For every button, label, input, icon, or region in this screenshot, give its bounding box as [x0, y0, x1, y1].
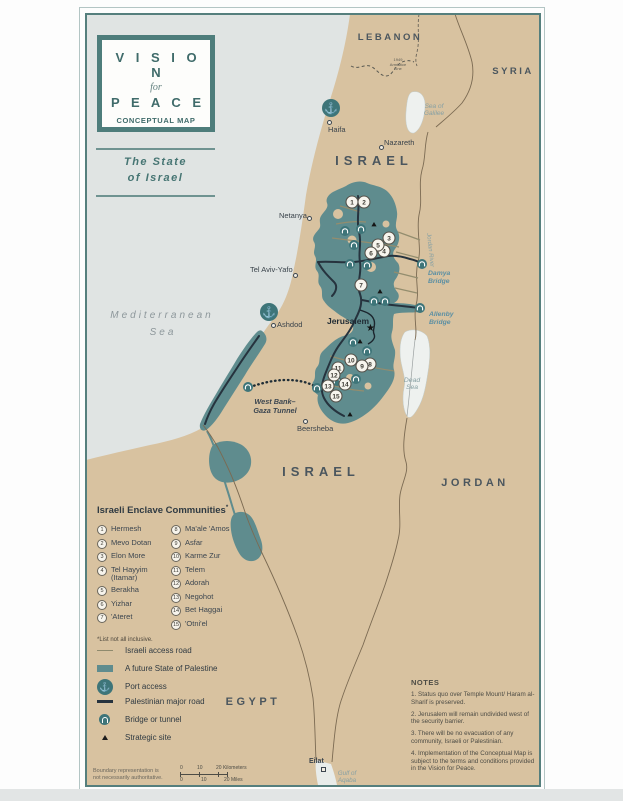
label-egypt: EGYPT	[226, 696, 281, 708]
map-subtitle: The State of Israel	[96, 154, 215, 186]
enclave-item: 7'Ateret	[97, 613, 171, 623]
enclave-name: Hermesh	[111, 525, 167, 534]
enclave-item: 3Elon More	[97, 552, 171, 562]
enclave-name: 'Otni'el	[185, 620, 241, 629]
symbol-legend: Israeli access road A future State of Pa…	[97, 646, 218, 751]
port-haifa-icon: ⚓	[322, 99, 340, 117]
scale-tick	[199, 772, 200, 777]
enclave-number: 7	[97, 613, 107, 623]
enclave-name: Telem	[185, 566, 241, 575]
note-item: 2. Jerusalem will remain undivided west …	[411, 711, 538, 727]
scale-mi-10: 10	[201, 777, 207, 783]
enclave-item: 4Tel Hayyim (Itamar)	[97, 566, 171, 583]
enclave-item: 5Berakha	[97, 586, 171, 596]
enclave-item: 14Bet Haggai	[171, 606, 245, 616]
west-bank-gaza-tunnel-line	[250, 380, 316, 387]
svg-text:8: 8	[368, 362, 372, 369]
svg-text:13: 13	[324, 384, 332, 391]
ashdod-dot	[271, 323, 276, 328]
label-israel-north: ISRAEL	[335, 153, 413, 168]
label-mediterranean-sea: Sea	[150, 327, 177, 338]
label-israel-south: ISRAEL	[282, 464, 360, 479]
scale-km-0: 0	[180, 765, 183, 771]
subtitle-line1: The State	[96, 154, 215, 170]
conceptual-map: ⚓ ⚓ 1 2 3 4 5 6 7 8 9 10 11 12 13 14 15 …	[85, 13, 541, 787]
title-for: for	[102, 82, 210, 93]
title-box: V I S I O N for P E A C E CONCEPTUAL MAP	[97, 35, 215, 132]
enclave-name: Bet Haggai	[185, 606, 241, 615]
enclave-legend-title: Israeli Enclave Communities*	[97, 505, 312, 516]
enclave-name: Berakha	[111, 586, 167, 595]
notes-panel: NOTES 1. Status quo over Temple Mount/ H…	[411, 678, 538, 777]
enclave-item: 10Karme Zur	[171, 552, 245, 562]
anchor-icon: ⚓	[97, 679, 113, 695]
legend-label: Israeli access road	[125, 646, 192, 655]
enclave-legend: Israeli Enclave Communities* 1Hermesh 2M…	[97, 505, 312, 643]
enclave-number: 15	[171, 620, 181, 630]
svg-text:9: 9	[360, 364, 364, 371]
label-mediterranean: Mediterranean	[110, 310, 213, 321]
svg-text:⚓: ⚓	[262, 306, 276, 319]
enclave-item: 12Adorah	[171, 579, 245, 589]
legend-row: Strategic site	[97, 733, 218, 742]
enclave-item: 6Yizhar	[97, 600, 171, 610]
legend-label: Port access	[125, 682, 167, 691]
legend-label: Strategic site	[125, 733, 171, 742]
disclaimer-line1: Boundary representation is	[93, 768, 163, 775]
netanya-dot	[307, 216, 312, 221]
legend-row: Palestinian major road	[97, 697, 218, 706]
note-item: 3. There will be no evacuation of any co…	[411, 730, 538, 746]
enclave-number: 6	[97, 600, 107, 610]
svg-text:3: 3	[387, 236, 391, 243]
svg-text:1: 1	[350, 200, 354, 207]
label-west-bank-gaza-tunnel: West Bank–Gaza Tunnel	[253, 397, 296, 415]
note-item: 1. Status quo over Temple Mount/ Haram a…	[411, 691, 538, 707]
title-conceptual-map: CONCEPTUAL MAP	[102, 116, 210, 125]
boundary-disclaimer: Boundary representation is not necessari…	[93, 768, 163, 782]
enclave-item: 13Negohot	[171, 593, 245, 603]
label-netanya: Netanya	[279, 211, 307, 220]
jerusalem-star-icon: ★	[366, 323, 375, 334]
sea-of-galilee-shape	[406, 92, 425, 133]
enclave-item: 9Asfar	[171, 539, 245, 549]
enclave-column-1: 1Hermesh 2Mevo Dotan 3Elon More 4Tel Hay…	[97, 525, 171, 633]
enclave-name: Ma'ale 'Amos	[185, 525, 245, 534]
legend-label: Palestinian major road	[125, 697, 205, 706]
enclave-name: Elon More	[111, 552, 167, 561]
enclave-name: 'Ateret	[111, 613, 167, 622]
legend-row: Israeli access road	[97, 646, 218, 655]
label-beersheba: Beersheba	[297, 424, 333, 433]
svg-text:7: 7	[359, 283, 363, 290]
svg-text:⚓: ⚓	[324, 102, 338, 115]
enclave-column-2: 8Ma'ale 'Amos 9Asfar 10Karme Zur 11Telem…	[171, 525, 245, 633]
enclave-number: 12	[171, 579, 181, 589]
enclave-name: Adorah	[185, 579, 241, 588]
label-allenby-bridge: AllenbyBridge	[429, 311, 454, 327]
scale-mi-20: 20 Miles	[224, 777, 243, 783]
access-road-swatch	[97, 650, 113, 652]
palestine-swatch	[97, 665, 113, 672]
page-bottom-strip	[0, 789, 623, 801]
label-tel-aviv-yafo: Tel Aviv-Yafo	[250, 265, 293, 274]
legend-row: ⚓Port access	[97, 682, 218, 691]
south-zone-a-shape	[209, 441, 251, 483]
scale-km-20: 20 Kilometers	[216, 765, 247, 771]
label-eilat: Eilat	[309, 758, 324, 765]
enclave-item: 15'Otni'el	[171, 620, 245, 630]
label-damya-bridge: DamyaBridge	[428, 270, 450, 286]
tel-aviv-dot	[293, 273, 298, 278]
enclave-name: Negohot	[185, 593, 241, 602]
enclave-name: Asfar	[185, 539, 241, 548]
label-lebanon: LEBANON	[358, 32, 422, 43]
svg-text:12: 12	[330, 373, 338, 380]
label-sea-of-galilee: Sea ofGalilee	[424, 103, 444, 117]
divider	[96, 195, 215, 197]
scale-tick	[180, 772, 181, 777]
legend-label: A future State of Palestine	[125, 664, 218, 673]
note-item: 4. Implementation of the Conceptual Map …	[411, 750, 538, 773]
enclave-item: 2Mevo Dotan	[97, 539, 171, 549]
enclave-number: 13	[171, 593, 181, 603]
svg-text:6: 6	[369, 251, 373, 258]
scale-mi-0: 0	[180, 777, 183, 783]
enclave-name: Karme Zur	[185, 552, 241, 561]
enclave-number: 4	[97, 566, 107, 576]
scale-bar: 0 10 20 Kilometers 0 10 20 Miles	[180, 765, 330, 787]
scale-tick	[218, 772, 219, 777]
enclave-number: 8	[171, 525, 181, 535]
notes-title: NOTES	[411, 678, 538, 687]
subtitle-line2: of Israel	[96, 170, 215, 186]
label-syria: SYRIA	[492, 66, 534, 77]
title-peace: P E A C E	[106, 95, 210, 110]
legend-row: Bridge or tunnel	[97, 715, 218, 724]
label-haifa: Haifa	[328, 125, 346, 134]
bridge-tunnel-icon	[99, 714, 110, 725]
enclave-number: 9	[171, 539, 181, 549]
port-ashdod-icon: ⚓	[260, 303, 278, 321]
svg-text:15: 15	[332, 394, 340, 401]
svg-text:5: 5	[376, 243, 380, 250]
label-ashdod: Ashdod	[277, 320, 302, 329]
enclave-item: 8Ma'ale 'Amos	[171, 525, 245, 535]
legend-label: Bridge or tunnel	[125, 715, 181, 724]
svg-text:4: 4	[382, 249, 386, 256]
svg-text:10: 10	[347, 358, 355, 365]
label-jordan: JORDAN	[441, 477, 508, 489]
label-nazareth: Nazareth	[384, 138, 414, 147]
palestinian-road-swatch	[97, 700, 113, 703]
label-jerusalem: Jerusalem	[327, 316, 369, 326]
enclave-number: 5	[97, 586, 107, 596]
enclave-number: 2	[97, 539, 107, 549]
label-1949-armistice-line: 1949ArmisticeLine	[390, 58, 406, 72]
enclave-number: 10	[171, 552, 181, 562]
svg-text:14: 14	[341, 382, 349, 389]
scale-line	[180, 774, 227, 775]
enclave-name: Mevo Dotan	[111, 539, 167, 548]
label-gulf-of-aqaba: Gulf ofAqaba	[338, 770, 357, 784]
enclave-number: 14	[171, 606, 181, 616]
scale-tick	[227, 772, 228, 777]
enclave-item: 11Telem	[171, 566, 245, 576]
enclave-number: 3	[97, 552, 107, 562]
disclaimer-line2: not necessarily authoritative.	[93, 775, 163, 782]
strategic-site-icon	[102, 735, 108, 740]
enclave-number: 11	[171, 566, 181, 576]
enclave-legend-footnote: *List not all inclusive.	[97, 637, 312, 643]
enclave-name: Yizhar	[111, 600, 167, 609]
scale-km-10: 10	[197, 765, 203, 771]
legend-row: A future State of Palestine	[97, 664, 218, 673]
enclave-item: 1Hermesh	[97, 525, 171, 535]
divider	[96, 148, 215, 150]
enclave-number: 1	[97, 525, 107, 535]
title-vision: V I S I O N	[106, 50, 210, 80]
svg-text:2: 2	[362, 200, 366, 207]
enclave-name: Tel Hayyim (Itamar)	[111, 566, 157, 583]
label-dead-sea: DeadSea	[404, 377, 420, 391]
